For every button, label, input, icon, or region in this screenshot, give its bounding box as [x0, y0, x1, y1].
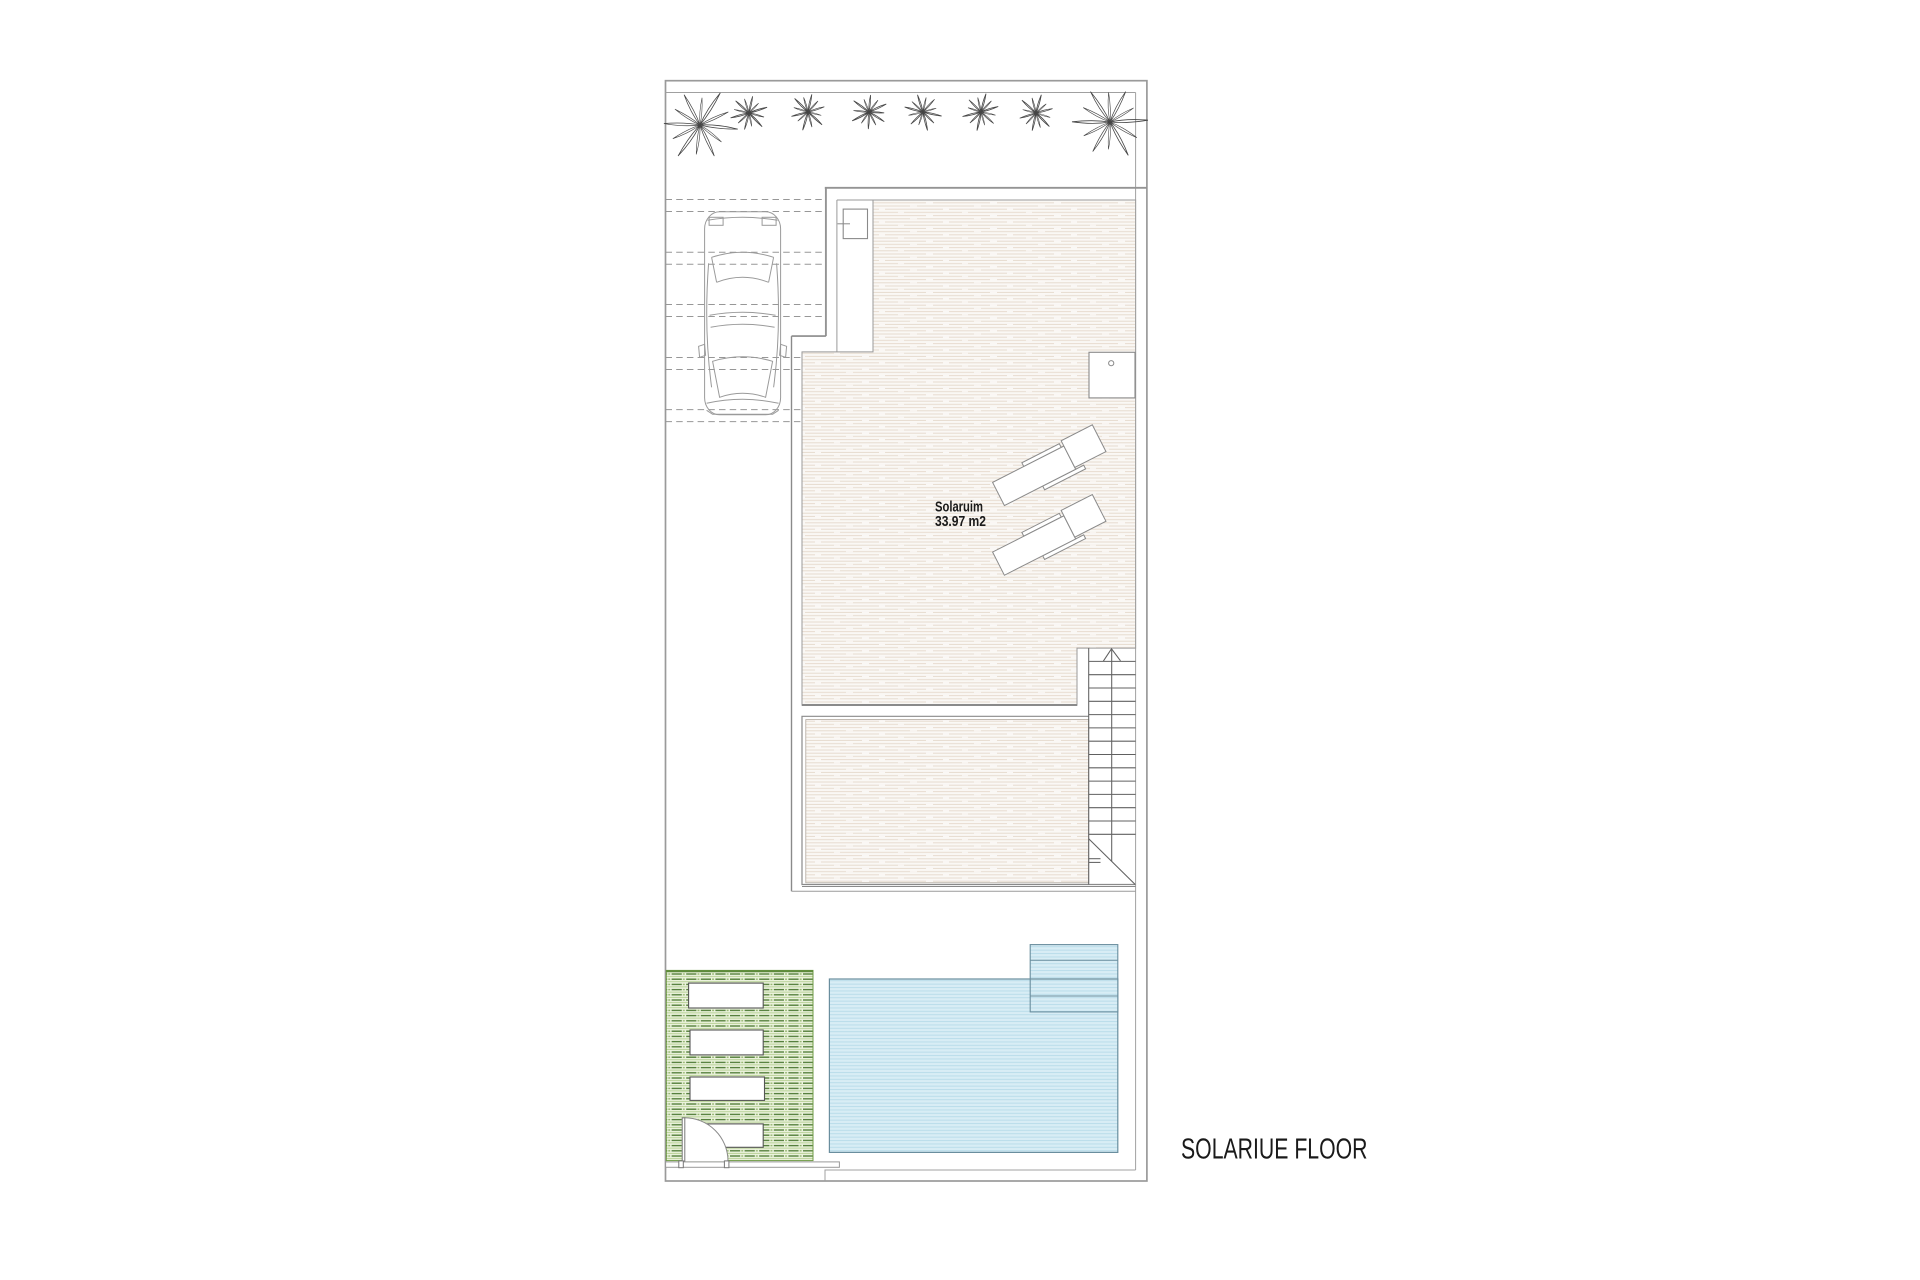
svg-text:33.97 m2: 33.97 m2	[935, 514, 986, 530]
svg-text:SOLARIUE FLOOR: SOLARIUE FLOOR	[1181, 1134, 1368, 1166]
